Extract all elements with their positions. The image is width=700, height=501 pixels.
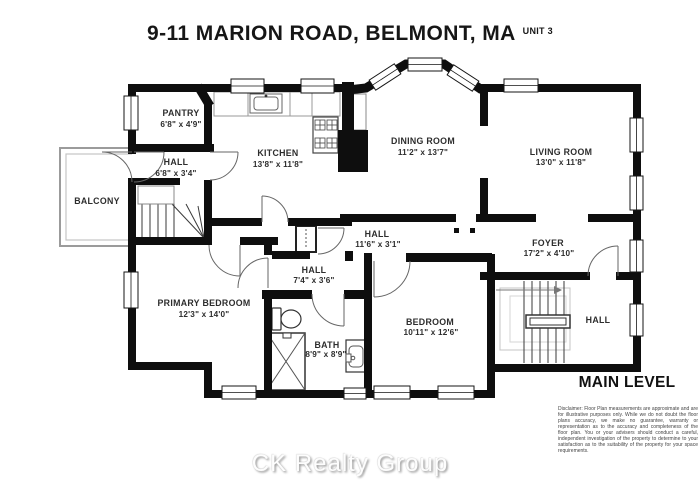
room-label-dining: DINING ROOM11'2" x 13'7" [391, 136, 455, 157]
room-label-bedroom: BEDROOM10'11" x 12'6" [404, 317, 459, 337]
closet-door [318, 228, 344, 254]
svg-text:11'6" x 3'1": 11'6" x 3'1" [355, 240, 400, 249]
window [222, 386, 256, 399]
entry-door [588, 246, 618, 276]
svg-text:HALL: HALL [586, 315, 611, 325]
primary-bedroom-door [209, 245, 240, 276]
closet-pocket-door [296, 226, 316, 252]
svg-text:6'8" x 4'9": 6'8" x 4'9" [160, 120, 201, 129]
svg-text:PRIMARY BEDROOM: PRIMARY BEDROOM [158, 298, 251, 308]
svg-text:17'2" x 4'10": 17'2" x 4'10" [524, 249, 575, 258]
window [124, 96, 138, 130]
svg-text:PANTRY: PANTRY [163, 108, 200, 118]
window [124, 272, 138, 308]
sink-fixture [250, 94, 282, 113]
svg-text:BEDROOM: BEDROOM [406, 317, 454, 327]
svg-text:HALL: HALL [302, 265, 327, 275]
svg-text:HALL: HALL [365, 229, 390, 239]
room-label-balcony: BALCONY [74, 196, 120, 206]
svg-text:12'3" x 14'0": 12'3" x 14'0" [179, 310, 230, 319]
stairs-right [496, 281, 570, 363]
shower-fixture [267, 333, 305, 390]
window [231, 79, 264, 93]
window [344, 388, 366, 399]
svg-text:FOYER: FOYER [532, 238, 564, 248]
svg-text:DINING ROOM: DINING ROOM [391, 136, 455, 146]
toilet-fixture [272, 308, 301, 330]
window [301, 79, 334, 93]
room-label-hall-small: HALL7'4" x 3'6" [293, 265, 334, 285]
window [630, 240, 643, 272]
floor-plan-page: 9-11 MARION ROAD, BELMONT, MAUNIT 3 [0, 0, 700, 501]
room-label-hall-lower: HALL [586, 315, 611, 325]
room-label-bath: BATH8'9" x 8'9" [305, 340, 346, 359]
hall-kitchen-door [210, 152, 238, 180]
svg-text:8'9" x 8'9": 8'9" x 8'9" [305, 350, 346, 359]
primary-bedroom-hall-door [238, 258, 268, 288]
window [504, 79, 538, 92]
stair-direction-arrow-icon [554, 286, 562, 294]
svg-text:BATH: BATH [315, 340, 340, 350]
room-label-pantry: PANTRY6'8" x 4'9" [160, 108, 201, 129]
svg-text:13'8" x 11'8": 13'8" x 11'8" [253, 160, 303, 169]
room-label-hall-mid: HALL11'6" x 3'1" [355, 229, 400, 249]
svg-text:HALL: HALL [164, 157, 189, 167]
svg-text:7'4" x 3'6": 7'4" x 3'6" [293, 276, 334, 285]
bath-door [312, 294, 344, 326]
svg-text:6'8" x 3'4": 6'8" x 3'4" [155, 169, 196, 178]
svg-text:11'2" x 13'7": 11'2" x 13'7" [398, 148, 448, 157]
svg-text:KITCHEN: KITCHEN [257, 148, 298, 158]
window [630, 176, 643, 210]
stove-fixture [313, 117, 338, 153]
room-label-hall-upper: HALL6'8" x 3'4" [155, 157, 196, 178]
vanity-fixture [346, 340, 366, 372]
stairs-left [138, 186, 204, 238]
room-label-foyer: FOYER17'2" x 4'10" [524, 238, 575, 258]
svg-text:LIVING ROOM: LIVING ROOM [530, 147, 592, 157]
room-label-kitchen: KITCHEN13'8" x 11'8" [253, 148, 303, 169]
svg-text:10'11" x 12'6": 10'11" x 12'6" [404, 328, 459, 337]
window [630, 304, 643, 336]
room-label-primary-bedroom: PRIMARY BEDROOM12'3" x 14'0" [158, 298, 251, 319]
kitchen-hall-door [262, 196, 288, 222]
window [369, 64, 401, 90]
window [447, 65, 479, 91]
brand-watermark: CK Realty Group [0, 450, 700, 478]
window [630, 118, 643, 152]
bedroom-door [374, 261, 410, 297]
window [374, 386, 410, 399]
room-label-living: LIVING ROOM13'0" x 11'8" [530, 147, 592, 167]
level-label: MAIN LEVEL [556, 374, 698, 392]
svg-text:BALCONY: BALCONY [74, 196, 120, 206]
disclaimer-text: Disclaimer: Floor Plan measurements are … [558, 406, 698, 454]
svg-text:13'0" x 11'8": 13'0" x 11'8" [536, 158, 586, 167]
window [438, 386, 474, 399]
window [408, 58, 442, 71]
